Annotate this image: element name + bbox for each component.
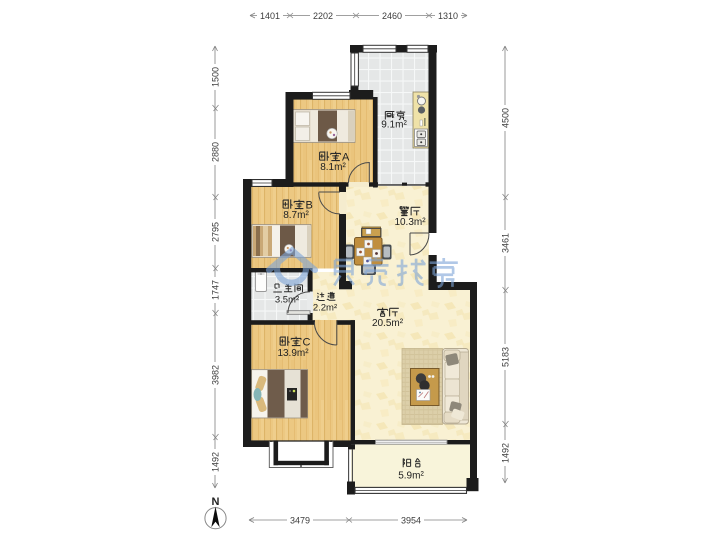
svg-text:13.9m²: 13.9m² (277, 348, 309, 359)
svg-text:3982: 3982 (211, 365, 221, 385)
svg-text:3479: 3479 (290, 516, 310, 526)
svg-text:3954: 3954 (401, 516, 421, 526)
svg-text:2202: 2202 (313, 11, 333, 21)
svg-text:N: N (212, 496, 220, 508)
svg-text:10.3m²: 10.3m² (394, 217, 426, 228)
svg-text:2.2m²: 2.2m² (313, 302, 337, 313)
svg-text:1500: 1500 (211, 67, 221, 87)
svg-text:1747: 1747 (211, 280, 221, 300)
svg-text:2795: 2795 (211, 222, 221, 242)
svg-text:5.9m²: 5.9m² (398, 471, 424, 482)
svg-text:3.5m²: 3.5m² (275, 294, 299, 305)
svg-text:2880: 2880 (211, 142, 221, 162)
svg-text:8.1m²: 8.1m² (320, 162, 346, 173)
svg-text:1492: 1492 (211, 452, 221, 472)
svg-text:1310: 1310 (438, 11, 458, 21)
svg-text:9.1m²: 9.1m² (381, 120, 407, 131)
svg-text:20.5m²: 20.5m² (372, 318, 404, 329)
svg-text:1492: 1492 (501, 443, 511, 463)
svg-text:3461: 3461 (501, 233, 511, 253)
svg-text:5183: 5183 (501, 347, 511, 367)
svg-text:C: C (303, 336, 311, 348)
svg-text:2460: 2460 (382, 11, 402, 21)
svg-text:1401: 1401 (260, 11, 280, 21)
svg-text:4500: 4500 (501, 108, 511, 128)
svg-text:8.7m²: 8.7m² (283, 210, 309, 221)
